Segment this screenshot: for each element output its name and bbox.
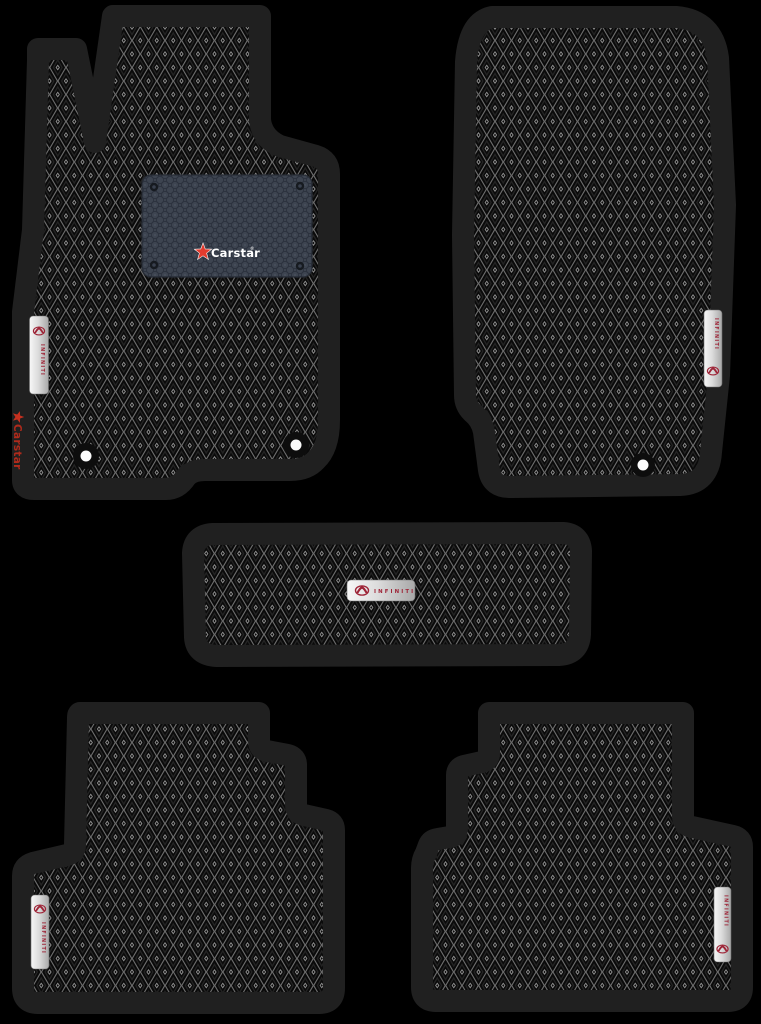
fixing-grommet [283,432,309,458]
fixing-grommet [631,453,655,477]
infiniti-tag: INFINITI [31,895,49,969]
heel-pad-rivet [296,182,304,190]
rear-left-mat: INFINITI [23,713,334,1003]
tunnel-mat: INFINITI [193,533,581,656]
infiniti-tag-label: INFINITI [713,318,719,350]
product-photo: Carstar ® INFINITI Carstar [0,0,761,1024]
heel-pad-rivet [296,262,304,270]
infiniti-tag: INFINITI [714,887,731,962]
rear-right-mat-body [422,713,742,1001]
fixing-grommet [73,443,99,469]
heel-pad: Carstar ® [142,175,312,277]
front-passenger-mat: INFINITI [463,17,725,487]
rear-right-mat: INFINITI [422,713,742,1001]
infiniti-tag: INFINITI [347,580,415,601]
front-driver-mat: Carstar ® INFINITI Carstar [11,16,329,489]
mats-illustration: Carstar ® INFINITI Carstar [0,0,761,1024]
heel-pad-rivet [150,261,158,269]
infiniti-tag-label: INFINITI [374,589,415,595]
infiniti-tag-label: INFINITI [39,344,45,376]
carstar-side-label: Carstar [11,424,23,470]
heel-pad-rivet [150,183,158,191]
infiniti-tag-label: INFINITI [723,895,729,927]
registered-mark: ® [250,245,255,252]
infiniti-tag: INFINITI [30,316,49,394]
rear-left-mat-body [23,713,334,1003]
passenger-mat-body [463,17,725,487]
infiniti-tag-label: INFINITI [40,922,46,954]
infiniti-tag: INFINITI [704,310,722,387]
